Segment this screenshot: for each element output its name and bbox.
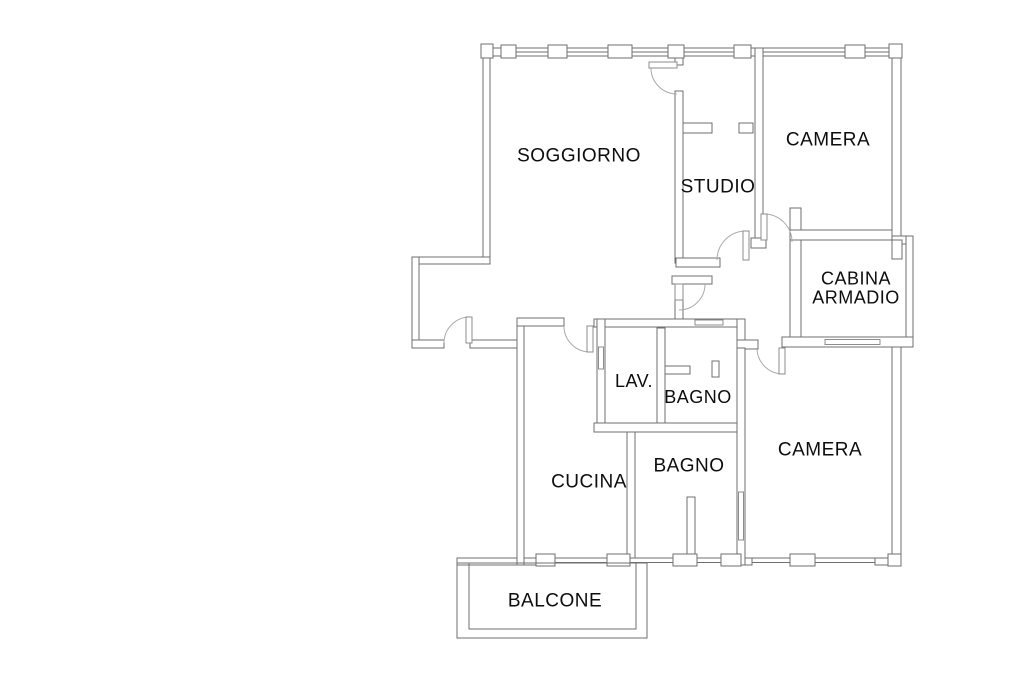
room-label-balcone: BALCONE <box>508 591 602 612</box>
floor-plan-drawing: SOGGIORNOSTUDIOCAMERACABINAARMADIOLAV.BA… <box>0 0 1024 682</box>
right-exterior-upper <box>892 48 901 238</box>
lav-pocket-door <box>599 347 604 369</box>
wall-pier <box>608 45 632 58</box>
wall-pier <box>889 44 902 58</box>
hallway-door-leaf <box>675 284 683 300</box>
window <box>630 558 673 563</box>
room-label-bagno-bottom: BAGNO <box>653 456 724 477</box>
floor-plan-page: SOGGIORNOSTUDIOCAMERACABINAARMADIOLAV.BA… <box>0 0 1024 682</box>
room-label-cucina: CUCINA <box>551 472 627 493</box>
cabina-east-wall <box>906 236 913 347</box>
window <box>815 558 875 563</box>
room-label-bagno-small: BAGNO <box>664 387 732 407</box>
wall-pier <box>721 554 741 566</box>
entrance-door-leaf <box>466 317 472 343</box>
entry-west-wall <box>412 257 419 347</box>
cucina-bagno-divider <box>627 432 635 563</box>
room-label-camera-bottom: CAMERA <box>778 440 862 461</box>
bagno-sliding-door <box>695 320 723 325</box>
bagno-small-stub-v <box>712 361 719 377</box>
right-exterior-lower <box>892 347 901 565</box>
cucina-door-leaf <box>587 326 593 352</box>
camera-top-south-wall <box>790 230 896 240</box>
wall-pier <box>668 45 684 58</box>
wall-pier <box>548 45 567 58</box>
entry-north-wall <box>412 257 490 264</box>
wall-pier <box>790 554 815 566</box>
bagno-small-stub-h <box>665 366 690 374</box>
studio-south-wall <box>676 258 720 267</box>
cabina-west-wall <box>790 208 801 347</box>
room-label-cabina-armadio: CABINAARMADIO <box>812 269 900 308</box>
hall-north-wall <box>672 276 712 284</box>
window <box>752 558 790 563</box>
entry-south-wall-b <box>470 340 523 348</box>
window <box>697 558 721 563</box>
wall-pier <box>501 45 516 58</box>
hall-stub-wall <box>675 298 683 319</box>
wall-pier <box>845 45 865 58</box>
camera-bottom-door-leaf <box>779 348 785 374</box>
studio-stub-left <box>683 123 712 133</box>
room-label-camera-top: CAMERA <box>786 130 870 151</box>
camera-sliding-door <box>739 492 744 540</box>
wall-pier <box>481 44 493 58</box>
left-exterior-wall <box>483 48 490 262</box>
studio-east-wall <box>755 48 763 238</box>
cabina-sliding-door <box>825 340 880 345</box>
cucina-west-wall <box>517 318 524 565</box>
studio-stub-right <box>739 123 753 133</box>
wall-pier <box>607 554 630 566</box>
lav-west-wall <box>597 319 605 432</box>
entry-south-wall-a <box>412 340 444 348</box>
cucina-north-wall <box>517 318 564 326</box>
wall-pier <box>536 554 555 566</box>
cabina-notch-pier <box>892 240 902 259</box>
lav-bagno-south-wall <box>594 423 745 432</box>
window <box>555 558 607 563</box>
room-label-studio: STUDIO <box>681 177 756 198</box>
bagno-bottom-stub <box>687 497 695 558</box>
wall-pier <box>673 554 697 566</box>
wall-pier <box>888 554 901 566</box>
studio-door-leaf <box>743 231 749 260</box>
room-label-lav: LAV. <box>615 371 653 391</box>
lav-bagno-divider <box>657 328 665 432</box>
soggiorno-studio-door-leaf <box>649 62 677 68</box>
room-label-soggiorno: SOGGIORNO <box>517 146 641 167</box>
wall-pier <box>734 45 751 58</box>
camera-top-door-leaf <box>761 214 767 240</box>
